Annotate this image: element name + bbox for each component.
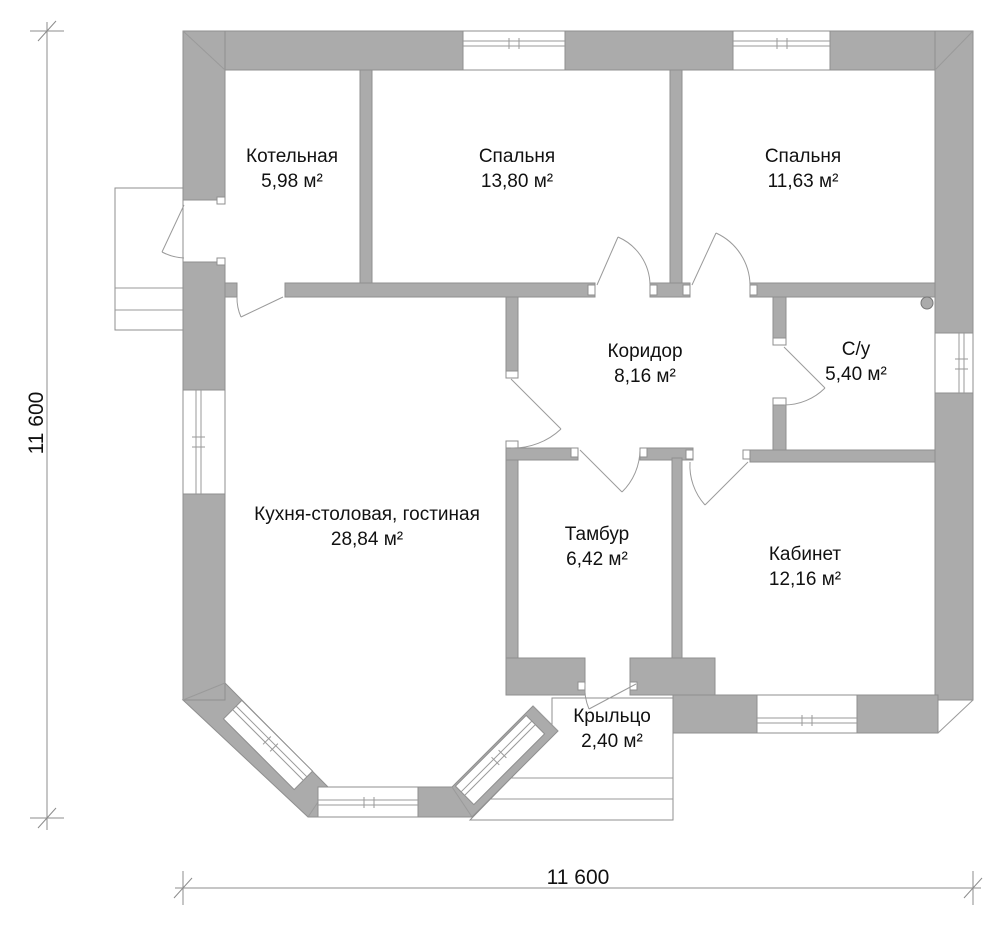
room-name: Крыльцо bbox=[573, 704, 651, 729]
floor-plan-drawing: 11 600 11 600 bbox=[0, 0, 1000, 942]
room-area: 8,16 м² bbox=[607, 364, 682, 389]
room-label-bedroom2: Спальня 11,63 м² bbox=[765, 144, 841, 194]
door-bedroom2 bbox=[683, 233, 757, 295]
room-name: Коридор bbox=[607, 339, 682, 364]
room-label-bedroom1: Спальня 13,80 м² bbox=[479, 144, 555, 194]
room-label-kotelnaya: Котельная 5,98 м² bbox=[246, 144, 338, 194]
room-name: Котельная bbox=[246, 144, 338, 169]
wc-vent-symbol bbox=[921, 297, 933, 309]
window-study-bottom bbox=[757, 695, 857, 733]
window-kitchen-left bbox=[183, 390, 225, 494]
room-name: Спальня bbox=[479, 144, 555, 169]
window-wc-right bbox=[935, 333, 973, 393]
door-bedroom1 bbox=[588, 237, 657, 295]
room-area: 28,84 м² bbox=[254, 527, 480, 552]
room-area: 5,40 м² bbox=[825, 362, 887, 387]
room-name: Спальня bbox=[765, 144, 841, 169]
room-name: С/у bbox=[825, 337, 887, 362]
door-study bbox=[686, 450, 750, 505]
room-area: 12,16 м² bbox=[769, 567, 841, 592]
room-label-koridor: Коридор 8,16 м² bbox=[607, 339, 682, 389]
room-area: 13,80 м² bbox=[479, 169, 555, 194]
door-wc bbox=[773, 338, 825, 405]
room-label-tambur: Тамбур 6,42 м² bbox=[565, 522, 630, 572]
room-area: 2,40 м² bbox=[573, 729, 651, 754]
room-label-kitchen: Кухня-столовая, гостиная 28,84 м² bbox=[254, 502, 480, 552]
room-name: Тамбур bbox=[565, 522, 630, 547]
door-kitchen-corridor bbox=[506, 371, 561, 448]
room-label-su: С/у 5,40 м² bbox=[825, 337, 887, 387]
room-name: Кабинет bbox=[769, 542, 841, 567]
window-bedroom2 bbox=[733, 31, 830, 70]
door-boiler-interior bbox=[237, 297, 283, 317]
room-label-krylco: Крыльцо 2,40 м² bbox=[573, 704, 651, 754]
room-area: 11,63 м² bbox=[765, 169, 841, 194]
room-label-kabinet: Кабинет 12,16 м² bbox=[769, 542, 841, 592]
dimension-left: 11 600 bbox=[25, 21, 64, 830]
boiler-entrance-porch bbox=[115, 188, 183, 330]
door-tambour bbox=[571, 448, 647, 492]
room-area: 6,42 м² bbox=[565, 547, 630, 572]
room-name: Кухня-столовая, гостиная bbox=[254, 502, 480, 527]
dimension-bottom-value: 11 600 bbox=[547, 866, 610, 889]
window-bedroom1 bbox=[463, 31, 565, 70]
floor-plan-page: 11 600 11 600 Котельная 5,98 м² Спальня … bbox=[0, 0, 1000, 942]
dimension-bottom: 11 600 bbox=[174, 866, 982, 905]
dimension-left-value: 11 600 bbox=[25, 392, 48, 455]
room-area: 5,98 м² bbox=[246, 169, 338, 194]
window-bay-bottom bbox=[318, 787, 418, 817]
